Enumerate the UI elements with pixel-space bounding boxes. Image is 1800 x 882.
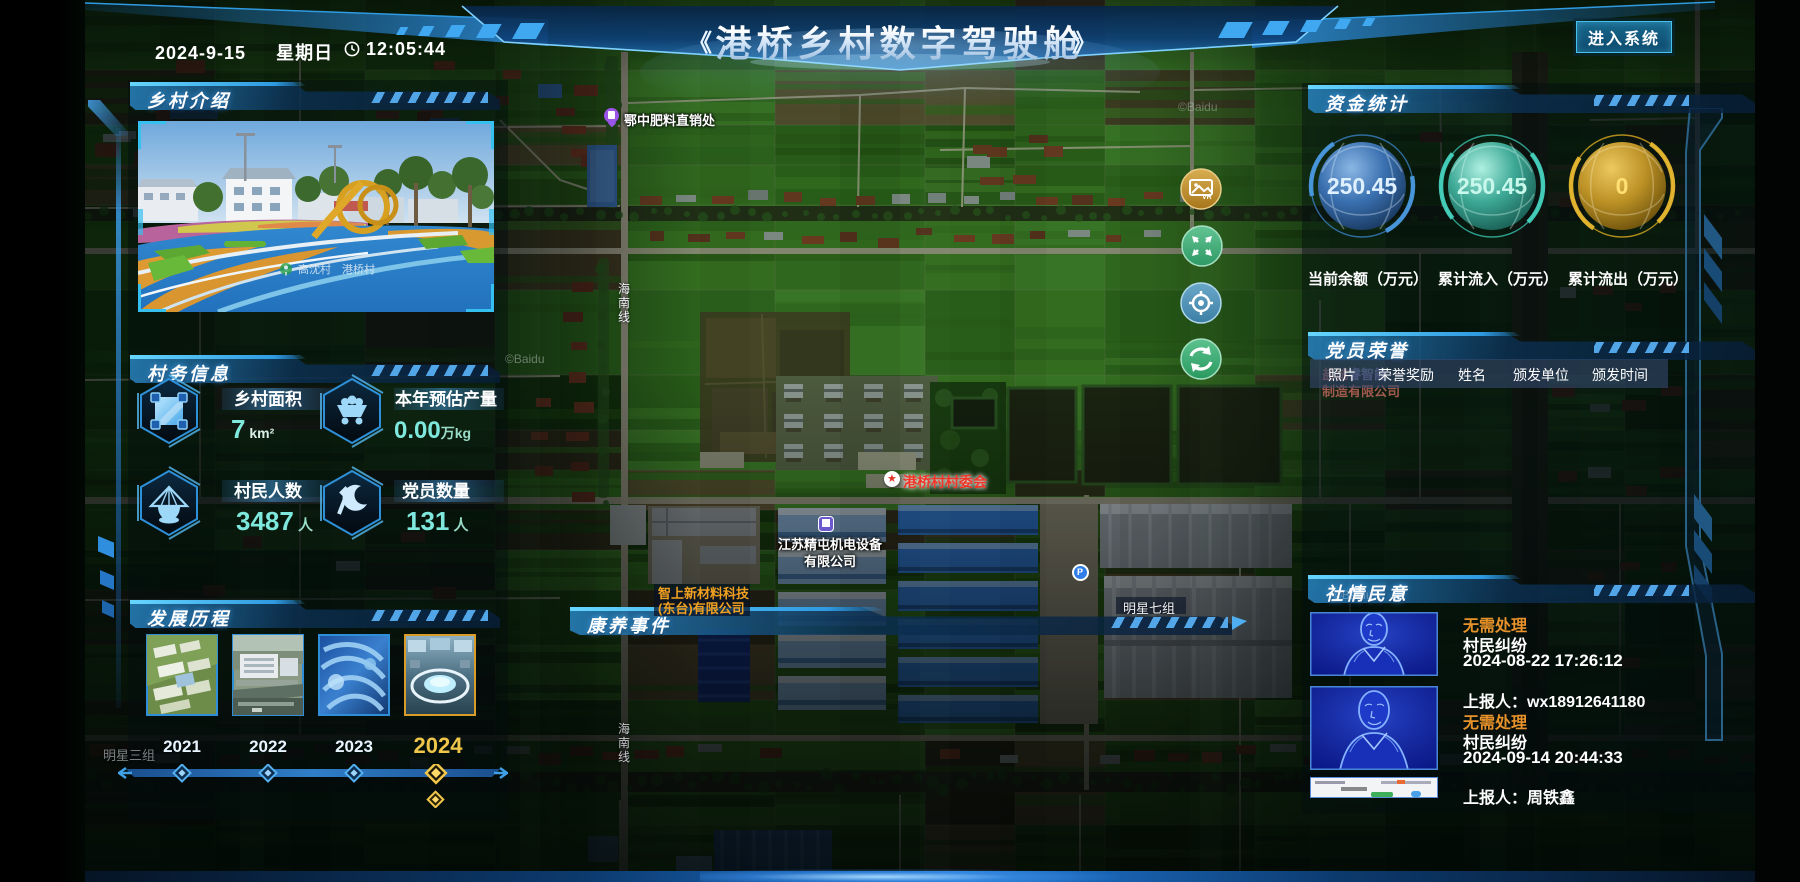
svg-text:250.45: 250.45: [1327, 173, 1398, 199]
svg-text:250.45: 250.45: [1457, 173, 1528, 199]
svg-text:高沈村 港桥村: 高沈村 港桥村: [298, 262, 375, 276]
svg-text:本年预估产量: 本年预估产量: [395, 389, 497, 409]
svg-text:乡村面积: 乡村面积: [234, 389, 302, 409]
svg-text:村民人数: 村民人数: [234, 481, 303, 501]
svg-text:0.00万kg: 0.00万kg: [394, 417, 471, 444]
svg-text:3487 人: 3487 人: [236, 506, 314, 536]
svg-text:131 人: 131 人: [406, 506, 470, 536]
svg-text:党员数量: 党员数量: [402, 481, 470, 501]
svg-text:7 km²: 7 km²: [231, 414, 275, 444]
svg-text:0: 0: [1616, 173, 1629, 199]
svg-text:VR: VR: [1202, 194, 1212, 201]
